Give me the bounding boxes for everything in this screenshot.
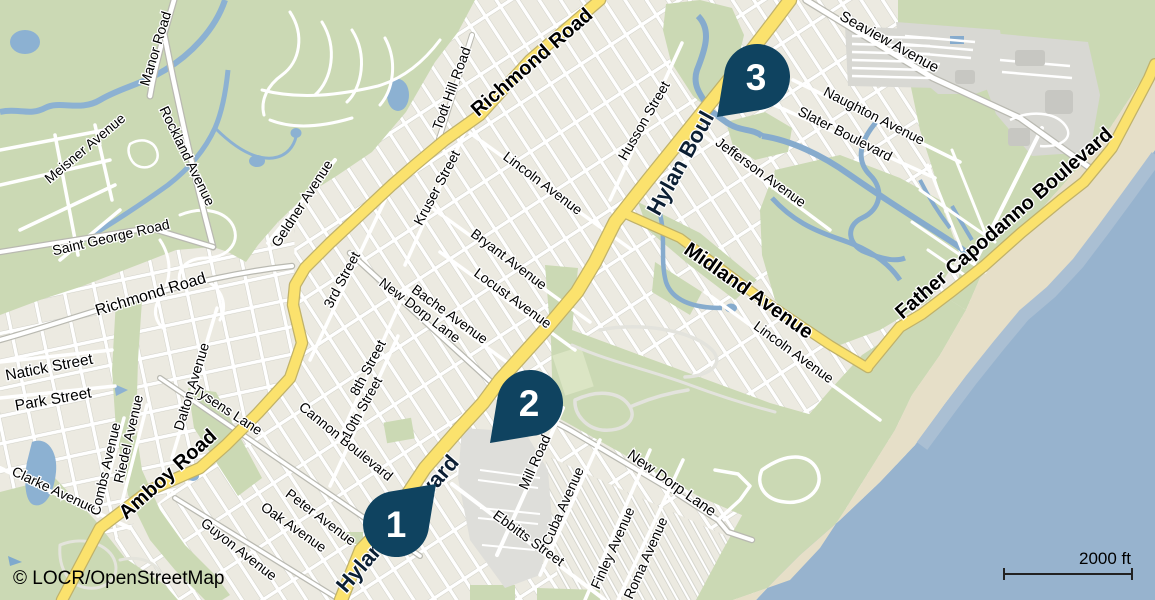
svg-text:2000 ft: 2000 ft — [1079, 549, 1131, 568]
svg-text:3: 3 — [746, 57, 767, 98]
svg-text:1: 1 — [386, 504, 407, 545]
svg-text:© LOCR/OpenStreetMap: © LOCR/OpenStreetMap — [13, 568, 224, 589]
svg-text:2: 2 — [519, 383, 540, 424]
